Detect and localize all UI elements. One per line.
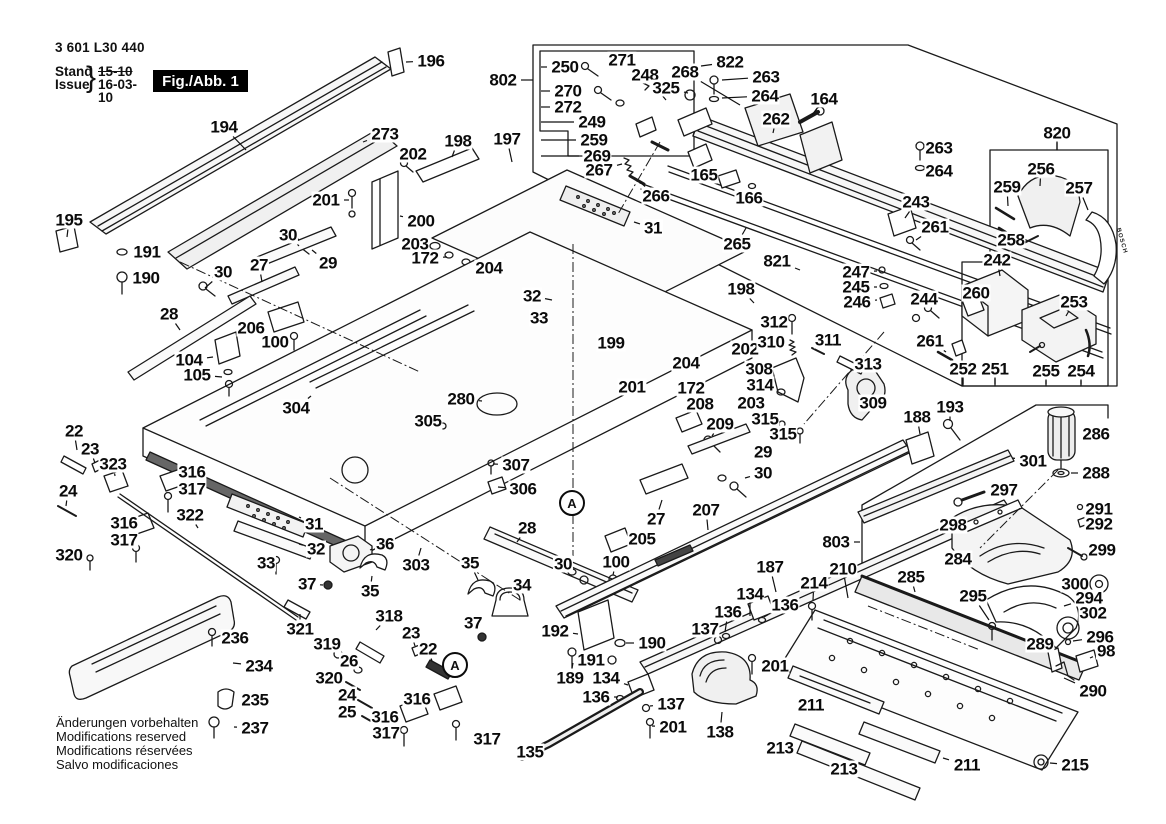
part-label-201: 201 — [658, 719, 687, 736]
part-label-261: 261 — [920, 219, 949, 236]
part-label-209: 209 — [705, 416, 734, 433]
part-label-310: 310 — [756, 334, 785, 351]
part-label-98: 98 — [1096, 643, 1116, 660]
part-label-318: 318 — [374, 608, 403, 625]
part-label-320: 320 — [314, 670, 343, 687]
part-label-208: 208 — [685, 396, 714, 413]
part-label-251: 251 — [980, 361, 1009, 378]
part-label-28: 28 — [517, 520, 537, 537]
part-label-317: 317 — [177, 481, 206, 498]
part-label-243: 243 — [901, 194, 930, 211]
part-label-285: 285 — [896, 569, 925, 586]
part-label-207: 207 — [691, 502, 720, 519]
part-label-199: 199 — [596, 335, 625, 352]
part-label-32: 32 — [306, 541, 326, 558]
part-label-292: 292 — [1084, 516, 1113, 533]
part-label-304: 304 — [281, 400, 310, 417]
part-label-166: 166 — [734, 190, 763, 207]
part-label-137: 137 — [656, 696, 685, 713]
part-label-192: 192 — [540, 623, 569, 640]
part-label-138: 138 — [705, 724, 734, 741]
part-label-135: 135 — [515, 744, 544, 761]
part-label-23: 23 — [80, 441, 100, 458]
part-label-820: 820 — [1042, 125, 1071, 142]
part-label-211: 211 — [953, 757, 981, 774]
part-label-164: 164 — [809, 91, 838, 108]
title-block: 3 601 L30 440 Stand Issue } 15-10 16-03-… — [55, 40, 145, 91]
part-label-303: 303 — [401, 557, 430, 574]
part-label-273: 273 — [370, 126, 399, 143]
part-label-286: 286 — [1081, 426, 1110, 443]
part-label-191: 191 — [576, 652, 605, 669]
part-label-305: 305 — [413, 413, 442, 430]
part-label-194: 194 — [209, 119, 238, 136]
part-label-302: 302 — [1078, 605, 1107, 622]
part-label-312: 312 — [759, 314, 788, 331]
part-label-193: 193 — [935, 399, 964, 416]
note-line: Salvo modificaciones — [56, 758, 198, 772]
part-label-307: 307 — [501, 457, 530, 474]
part-label-201: 201 — [760, 658, 789, 675]
part-label-30: 30 — [278, 227, 298, 244]
part-label-319: 319 — [312, 636, 341, 653]
part-label-299: 299 — [1087, 542, 1116, 559]
part-label-198: 198 — [726, 281, 755, 298]
part-label-22: 22 — [418, 641, 438, 658]
disclaimer-notes: Änderungen vorbehalten Modifications res… — [56, 716, 198, 772]
part-label-213: 213 — [829, 761, 858, 778]
part-label-198: 198 — [443, 133, 472, 150]
callout-circle-A: A — [442, 652, 468, 678]
part-label-266: 266 — [641, 188, 670, 205]
part-label-37: 37 — [297, 576, 317, 593]
part-label-317: 317 — [371, 725, 400, 742]
part-label-136: 136 — [713, 604, 742, 621]
part-label-201: 201 — [617, 379, 646, 396]
part-label-235: 235 — [240, 692, 269, 709]
part-number: 3 601 L30 440 — [55, 40, 145, 55]
part-label-234: 234 — [244, 658, 273, 675]
part-label-195: 195 — [54, 212, 83, 229]
part-label-313: 313 — [853, 356, 882, 373]
part-label-25: 25 — [337, 704, 357, 721]
part-label-265: 265 — [722, 236, 751, 253]
part-label-211: 211 — [797, 697, 825, 714]
part-label-256: 256 — [1026, 161, 1055, 178]
part-label-822: 822 — [715, 54, 744, 71]
part-label-29: 29 — [318, 255, 338, 272]
part-label-321: 321 — [285, 621, 314, 638]
part-label-27: 27 — [249, 257, 269, 274]
part-label-252: 252 — [948, 361, 977, 378]
part-label-298: 298 — [938, 517, 967, 534]
part-label-28: 28 — [159, 306, 179, 323]
part-label-317: 317 — [472, 731, 501, 748]
part-label-30: 30 — [213, 264, 233, 281]
part-label-311: 311 — [814, 332, 842, 349]
part-label-289: 289 — [1025, 636, 1054, 653]
part-label-250: 250 — [550, 59, 579, 76]
part-label-249: 249 — [577, 114, 606, 131]
part-label-136: 136 — [770, 597, 799, 614]
part-label-317: 317 — [109, 532, 138, 549]
part-label-36: 36 — [375, 536, 395, 553]
part-label-189: 189 — [555, 670, 584, 687]
part-label-26: 26 — [339, 653, 359, 670]
part-label-188: 188 — [902, 409, 931, 426]
part-label-237: 237 — [240, 720, 269, 737]
part-label-309: 309 — [858, 395, 887, 412]
part-label-100: 100 — [260, 334, 289, 351]
part-label-190: 190 — [131, 270, 160, 287]
part-label-259: 259 — [992, 179, 1021, 196]
part-label-191: 191 — [132, 244, 161, 261]
part-label-246: 246 — [842, 294, 871, 311]
part-label-215: 215 — [1060, 757, 1089, 774]
part-label-214: 214 — [799, 575, 828, 592]
part-label-27: 27 — [646, 511, 666, 528]
part-label-35: 35 — [360, 583, 380, 600]
parts-diagram-page: 3 601 L30 440 Stand Issue } 15-10 16-03-… — [0, 0, 1166, 824]
part-label-297: 297 — [989, 482, 1018, 499]
part-label-30: 30 — [553, 556, 573, 573]
part-label-200: 200 — [406, 213, 435, 230]
brace-glyph: } — [86, 61, 96, 95]
part-label-100: 100 — [601, 554, 630, 571]
part-label-323: 323 — [98, 456, 127, 473]
note-line: Modifications réservées — [56, 744, 198, 758]
note-line: Modifications reserved — [56, 730, 198, 744]
part-label-244: 244 — [909, 291, 938, 308]
part-labels-layer: 1942731951911902013029273019680225027124… — [0, 0, 1166, 824]
part-label-105: 105 — [182, 367, 211, 384]
part-label-204: 204 — [671, 355, 700, 372]
part-label-316: 316 — [109, 515, 138, 532]
part-label-202: 202 — [730, 341, 759, 358]
part-label-204: 204 — [474, 260, 503, 277]
callout-circle-A: A — [559, 490, 585, 516]
part-label-196: 196 — [416, 53, 445, 70]
part-label-316: 316 — [177, 464, 206, 481]
part-label-136: 136 — [581, 689, 610, 706]
part-label-172: 172 — [410, 250, 439, 267]
part-label-254: 254 — [1066, 363, 1095, 380]
part-label-320: 320 — [54, 547, 83, 564]
part-label-306: 306 — [508, 481, 537, 498]
part-label-280: 280 — [446, 391, 475, 408]
part-label-34: 34 — [512, 577, 532, 594]
issue-value: 16-03-10 — [98, 78, 145, 91]
part-label-315: 315 — [768, 426, 797, 443]
part-label-325: 325 — [651, 80, 680, 97]
part-label-210: 210 — [828, 561, 857, 578]
part-label-322: 322 — [175, 507, 204, 524]
part-label-134: 134 — [735, 586, 764, 603]
part-label-264: 264 — [750, 88, 779, 105]
part-label-190: 190 — [637, 635, 666, 652]
part-label-32: 32 — [522, 288, 542, 305]
part-label-24: 24 — [337, 687, 357, 704]
part-label-202: 202 — [398, 146, 427, 163]
part-label-290: 290 — [1078, 683, 1107, 700]
part-label-205: 205 — [627, 531, 656, 548]
part-label-264: 264 — [924, 163, 953, 180]
note-line: Änderungen vorbehalten — [56, 716, 198, 730]
part-label-201: 201 — [311, 192, 340, 209]
part-label-31: 31 — [643, 220, 663, 237]
part-label-260: 260 — [961, 285, 990, 302]
part-label-187: 187 — [755, 559, 784, 576]
part-label-213: 213 — [765, 740, 794, 757]
part-label-35: 35 — [460, 555, 480, 572]
part-label-253: 253 — [1059, 294, 1088, 311]
part-label-821: 821 — [762, 253, 791, 270]
part-label-261: 261 — [915, 333, 944, 350]
part-label-137: 137 — [690, 621, 719, 638]
part-label-267: 267 — [584, 162, 613, 179]
part-label-314: 314 — [745, 377, 774, 394]
part-label-24: 24 — [58, 483, 78, 500]
part-label-262: 262 — [761, 111, 790, 128]
part-label-29: 29 — [753, 444, 773, 461]
part-label-301: 301 — [1018, 453, 1047, 470]
part-label-263: 263 — [751, 69, 780, 86]
part-label-295: 295 — [958, 588, 987, 605]
part-label-37: 37 — [463, 615, 483, 632]
part-label-22: 22 — [64, 423, 84, 440]
part-label-802: 802 — [488, 72, 517, 89]
part-label-31: 31 — [304, 516, 324, 533]
part-label-263: 263 — [924, 140, 953, 157]
part-label-33: 33 — [256, 555, 276, 572]
part-label-197: 197 — [492, 131, 521, 148]
part-label-255: 255 — [1031, 363, 1060, 380]
part-label-134: 134 — [591, 670, 620, 687]
part-label-316: 316 — [402, 691, 431, 708]
part-label-33: 33 — [529, 310, 549, 327]
part-label-30: 30 — [753, 465, 773, 482]
part-label-284: 284 — [943, 551, 972, 568]
part-label-242: 242 — [982, 252, 1011, 269]
part-label-258: 258 — [996, 232, 1025, 249]
part-label-288: 288 — [1081, 465, 1110, 482]
figure-label: Fig./Abb. 1 — [153, 70, 248, 92]
part-label-803: 803 — [821, 534, 850, 551]
part-label-257: 257 — [1064, 180, 1093, 197]
part-label-165: 165 — [689, 167, 718, 184]
part-label-236: 236 — [220, 630, 249, 647]
